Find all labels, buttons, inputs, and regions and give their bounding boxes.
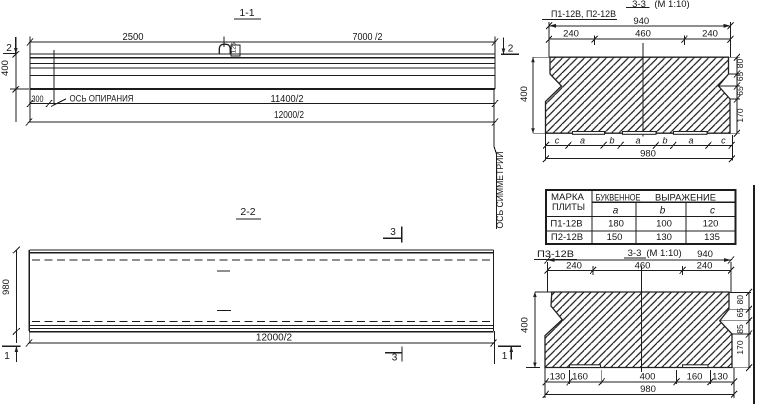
svg-text:980: 980 <box>640 149 656 160</box>
svg-text:(М 1:10): (М 1:10) <box>654 0 689 10</box>
svg-text:170: 170 <box>735 108 745 122</box>
svg-text:120: 120 <box>703 218 719 229</box>
svg-text:a: a <box>635 136 640 146</box>
svg-text:180: 180 <box>608 218 624 229</box>
svg-text:П2-12В: П2-12В <box>551 232 583 243</box>
svg-text:300: 300 <box>32 94 44 105</box>
svg-text:460: 460 <box>635 261 651 272</box>
svg-text:400: 400 <box>519 317 530 333</box>
svg-text:2-2: 2-2 <box>240 206 255 218</box>
svg-text:130: 130 <box>712 371 728 382</box>
svg-text:400: 400 <box>0 60 11 76</box>
svg-text:240: 240 <box>566 261 582 272</box>
svg-text:170: 170 <box>735 340 745 354</box>
svg-text:ОСЬ ОПИРАНИЯ: ОСЬ ОПИРАНИЯ <box>70 93 134 103</box>
svg-text:c: c <box>721 136 726 146</box>
svg-text:b: b <box>660 206 666 217</box>
svg-text:3: 3 <box>390 227 396 238</box>
svg-text:125: 125 <box>231 42 238 53</box>
svg-text:П1-12В, П2-12В: П1-12В, П2-12В <box>551 9 616 20</box>
svg-text:160: 160 <box>687 371 703 382</box>
svg-text:12000/2: 12000/2 <box>274 110 304 121</box>
svg-text:160: 160 <box>572 371 588 382</box>
svg-text:1: 1 <box>4 351 10 362</box>
svg-text:3: 3 <box>392 353 398 364</box>
svg-text:400: 400 <box>640 371 656 382</box>
svg-text:ВЫРАЖЕНИЕ: ВЫРАЖЕНИЕ <box>655 192 716 203</box>
svg-text:7000 /2: 7000 /2 <box>353 32 383 43</box>
svg-text:b: b <box>662 136 667 146</box>
svg-text:80: 80 <box>735 59 745 69</box>
svg-text:2: 2 <box>508 44 514 55</box>
svg-text:a: a <box>688 136 693 146</box>
svg-text:400: 400 <box>519 86 530 102</box>
svg-text:12000/2: 12000/2 <box>256 333 293 344</box>
svg-text:240: 240 <box>702 29 718 40</box>
svg-text:940: 940 <box>697 249 713 260</box>
svg-text:1: 1 <box>502 351 508 362</box>
svg-text:2500: 2500 <box>123 32 144 43</box>
svg-text:ПЛИТЫ: ПЛИТЫ <box>552 202 585 213</box>
svg-text:135: 135 <box>704 232 720 243</box>
svg-text:240: 240 <box>697 261 713 272</box>
svg-text:940: 940 <box>633 16 649 27</box>
svg-text:130: 130 <box>656 232 672 243</box>
svg-text:460: 460 <box>635 29 651 40</box>
svg-text:c: c <box>710 206 715 217</box>
svg-text:c: c <box>555 136 560 146</box>
svg-text:П1-12В: П1-12В <box>550 218 582 229</box>
svg-text:ОСЬ СИММЕТРИИ: ОСЬ СИММЕТРИИ <box>495 152 505 229</box>
svg-text:130: 130 <box>550 371 566 382</box>
svg-text:980: 980 <box>1 279 12 295</box>
svg-text:1-1: 1-1 <box>239 7 254 19</box>
svg-text:a: a <box>613 206 619 217</box>
svg-text:b: b <box>609 136 614 146</box>
svg-text:65: 65 <box>735 308 745 318</box>
svg-text:65: 65 <box>735 86 745 96</box>
svg-text:a: a <box>580 136 585 146</box>
svg-text:100: 100 <box>656 218 672 229</box>
svg-text:980: 980 <box>640 384 656 395</box>
svg-text:11400/2: 11400/2 <box>271 94 304 105</box>
svg-text:(М 1:10): (М 1:10) <box>646 248 681 259</box>
svg-text:65: 65 <box>735 72 745 82</box>
svg-text:85: 85 <box>735 324 745 334</box>
svg-text:240: 240 <box>563 29 579 40</box>
svg-text:БУКВЕННОЕ: БУКВЕННОЕ <box>596 192 641 203</box>
svg-text:3-3: 3-3 <box>632 0 646 10</box>
svg-text:П3-12В: П3-12В <box>537 249 574 260</box>
svg-text:150: 150 <box>607 232 623 243</box>
svg-text:2: 2 <box>6 43 12 54</box>
svg-text:80: 80 <box>735 295 745 305</box>
